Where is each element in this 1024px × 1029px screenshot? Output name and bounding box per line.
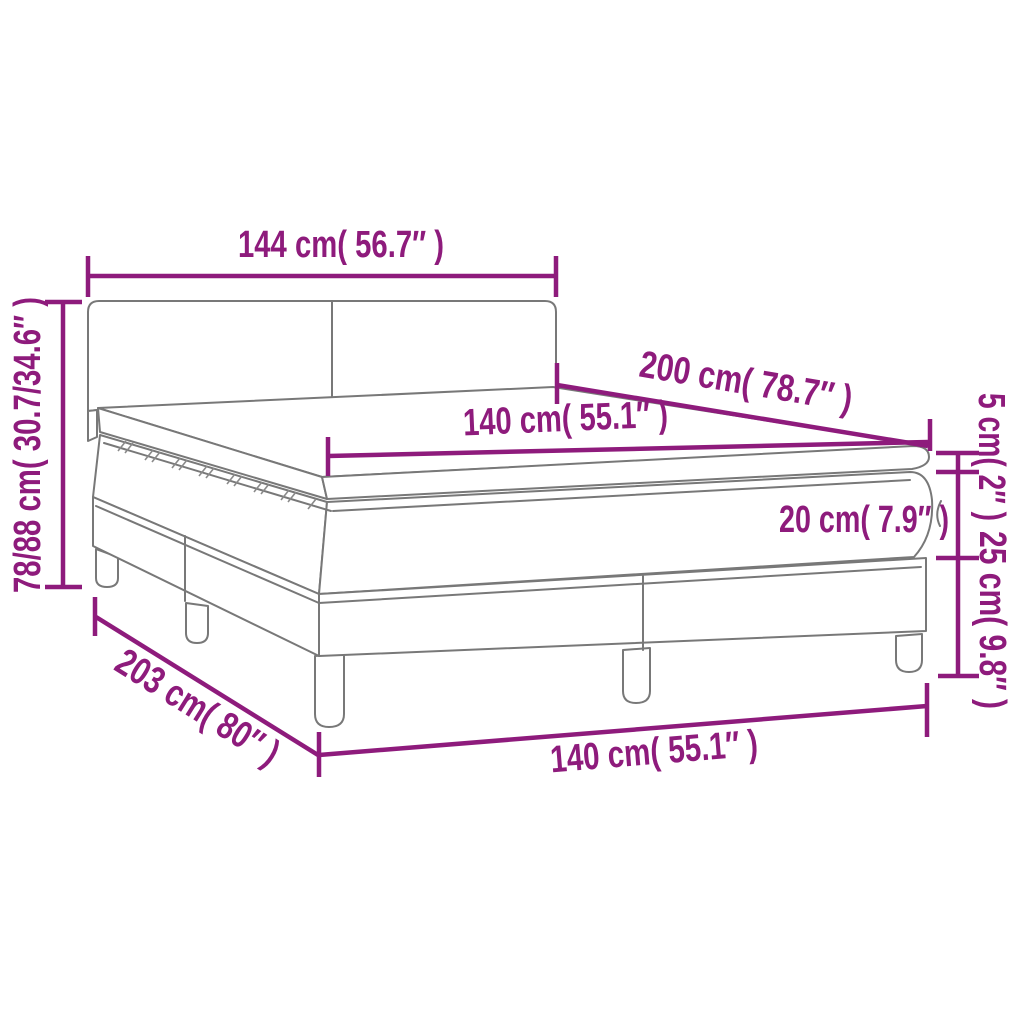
dim-headboard-width-label: 144 cm( 56.7″ ) [238,224,444,266]
dim-topper-height-label: 5 cm( 2″ ) [970,393,1012,521]
dim-total-height: 78/88 cm( 30.7/34.6″ ) [7,297,82,593]
dim-mattress-height-label: 20 cm( 7.9″ ) [779,499,949,541]
bed-leg [186,603,208,643]
dim-total-height-label: 78/88 cm( 30.7/34.6″ ) [7,297,49,593]
dim-length-bottom-label: 203 cm( 80″ ) [108,641,287,775]
dim-base-height-label: 25 cm( 9.8″ ) [971,531,1013,709]
bed-leg [896,634,922,672]
diagram-canvas: 144 cm( 56.7″ ) 78/88 cm( 30.7/34.6″ ) 2… [0,0,1024,1024]
bed-leg [315,654,344,727]
dim-headboard-width: 144 cm( 56.7″ ) [88,224,556,297]
dim-mattress-width-label: 140 cm( 55.1″ ) [462,394,669,445]
headboard-left-leg [88,410,97,441]
dim-base-width: 140 cm( 55.1″ ) [319,683,927,781]
dim-base-width-label: 140 cm( 55.1″ ) [549,723,760,782]
bed-dimension-diagram: 144 cm( 56.7″ ) 78/88 cm( 30.7/34.6″ ) 2… [0,0,1024,1024]
bed-leg [623,648,650,703]
